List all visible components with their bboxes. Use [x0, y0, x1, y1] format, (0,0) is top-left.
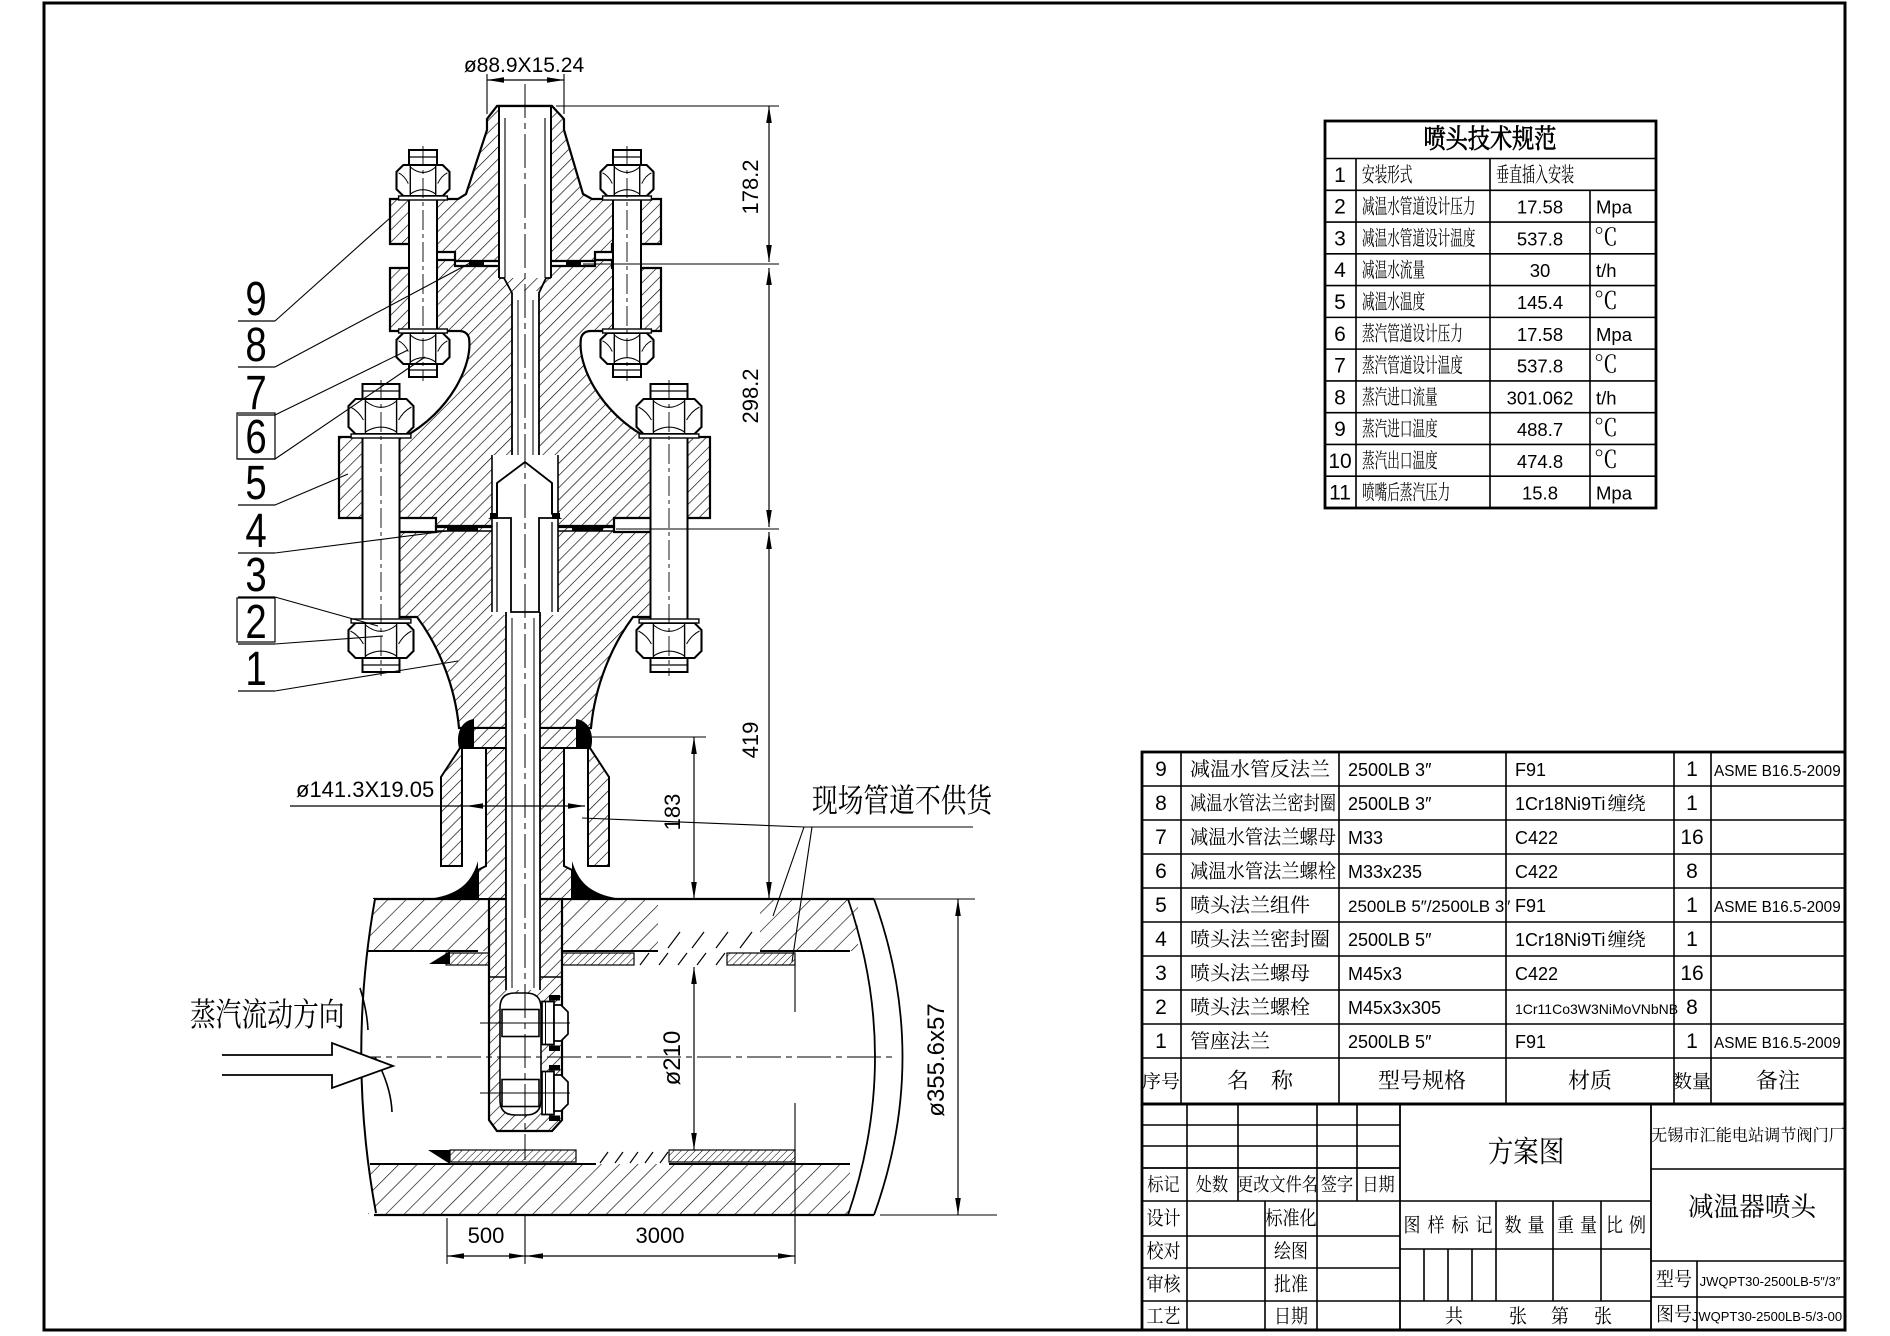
- svg-text:488.7: 488.7: [1517, 419, 1563, 440]
- svg-text:3: 3: [245, 549, 266, 602]
- svg-text:ASME B16.5-2009: ASME B16.5-2009: [1714, 763, 1841, 780]
- svg-text:M45x3: M45x3: [1348, 964, 1402, 984]
- svg-text:7: 7: [1155, 826, 1167, 849]
- svg-text:1: 1: [1155, 1030, 1167, 1053]
- svg-text:C422: C422: [1515, 964, 1558, 984]
- svg-text:2500LB 5″: 2500LB 5″: [1348, 1032, 1432, 1052]
- svg-text:17.58: 17.58: [1517, 197, 1563, 218]
- svg-text:5: 5: [245, 457, 266, 510]
- svg-text:F91: F91: [1515, 896, 1546, 916]
- svg-text:145.4: 145.4: [1517, 292, 1563, 313]
- svg-text:1: 1: [1686, 1030, 1698, 1053]
- svg-text:M33: M33: [1348, 828, 1383, 848]
- svg-text:8: 8: [1334, 386, 1346, 409]
- svg-text:ø210: ø210: [659, 1031, 686, 1086]
- svg-text:9: 9: [1155, 758, 1167, 781]
- svg-text:8: 8: [1686, 860, 1698, 883]
- svg-text:ø141.3X19.05: ø141.3X19.05: [296, 777, 434, 802]
- svg-text:JWQPT30-2500LB-5″/3″: JWQPT30-2500LB-5″/3″: [1700, 1274, 1841, 1289]
- svg-text:537.8: 537.8: [1517, 228, 1563, 249]
- svg-text:2500LB 3″: 2500LB 3″: [1348, 794, 1432, 814]
- svg-text:11: 11: [1329, 482, 1351, 505]
- svg-text:15.8: 15.8: [1522, 483, 1558, 504]
- svg-text:6: 6: [1334, 323, 1346, 346]
- svg-text:537.8: 537.8: [1517, 356, 1563, 377]
- svg-text:ø355.6x57: ø355.6x57: [923, 1003, 950, 1116]
- svg-text:Mpa: Mpa: [1596, 324, 1633, 345]
- svg-text:2500LB 3″: 2500LB 3″: [1348, 760, 1432, 780]
- svg-text:ø88.9X15.24: ø88.9X15.24: [464, 54, 585, 77]
- svg-text:2500LB 5″: 2500LB 5″: [1348, 930, 1432, 950]
- svg-text:C422: C422: [1515, 828, 1558, 848]
- svg-text:2: 2: [245, 596, 266, 649]
- svg-text:474.8: 474.8: [1517, 451, 1563, 472]
- svg-text:183: 183: [660, 794, 685, 831]
- svg-text:1: 1: [1686, 792, 1698, 815]
- svg-text:1: 1: [1686, 928, 1698, 951]
- svg-text:M33x235: M33x235: [1348, 862, 1422, 882]
- svg-text:2: 2: [1334, 196, 1346, 219]
- svg-text:17.58: 17.58: [1517, 324, 1563, 345]
- svg-text:3000: 3000: [636, 1223, 685, 1248]
- svg-text:JWQPT30-2500LB-5/3-00: JWQPT30-2500LB-5/3-00: [1692, 1309, 1842, 1324]
- svg-text:6: 6: [1155, 860, 1167, 883]
- svg-text:10: 10: [1328, 450, 1351, 473]
- svg-text:9: 9: [1334, 418, 1346, 441]
- svg-text:301.062: 301.062: [1507, 387, 1574, 408]
- svg-text:t/h: t/h: [1596, 387, 1617, 408]
- svg-text:ASME B16.5-2009: ASME B16.5-2009: [1714, 1035, 1841, 1052]
- svg-text:16: 16: [1680, 962, 1703, 985]
- svg-text:F91: F91: [1515, 1032, 1546, 1052]
- svg-text:4: 4: [1334, 259, 1346, 282]
- svg-text:500: 500: [468, 1223, 505, 1248]
- svg-text:5: 5: [1155, 894, 1167, 917]
- svg-text:1Cr18Ni9Ti: 1Cr18Ni9Ti: [1515, 794, 1605, 814]
- svg-text:7: 7: [1334, 355, 1346, 378]
- svg-text:2500LB 5″/2500LB 3″: 2500LB 5″/2500LB 3″: [1348, 897, 1510, 916]
- svg-text:Mpa: Mpa: [1596, 197, 1633, 218]
- svg-text:ASME B16.5-2009: ASME B16.5-2009: [1714, 899, 1841, 916]
- svg-text:Mpa: Mpa: [1596, 483, 1633, 504]
- svg-text:1: 1: [1686, 894, 1698, 917]
- svg-text:3: 3: [1334, 227, 1346, 250]
- svg-text:C422: C422: [1515, 862, 1558, 882]
- svg-text:178.2: 178.2: [738, 159, 763, 214]
- svg-text:298.2: 298.2: [738, 368, 763, 423]
- svg-text:8: 8: [1686, 996, 1698, 1019]
- svg-text:8: 8: [245, 319, 266, 372]
- svg-text:1Cr18Ni9Ti: 1Cr18Ni9Ti: [1515, 930, 1605, 950]
- svg-text:30: 30: [1530, 260, 1551, 281]
- svg-text:8: 8: [1155, 792, 1167, 815]
- svg-text:2: 2: [1155, 996, 1167, 1019]
- svg-text:1: 1: [1686, 758, 1698, 781]
- svg-text:M45x3x305: M45x3x305: [1348, 998, 1441, 1018]
- svg-text:3: 3: [1155, 962, 1167, 985]
- svg-text:1Cr11Co3W3NiMoVNbNB: 1Cr11Co3W3NiMoVNbNB: [1515, 1001, 1678, 1017]
- svg-text:5: 5: [1334, 291, 1346, 314]
- svg-text:1: 1: [1334, 164, 1346, 187]
- svg-text:F91: F91: [1515, 760, 1546, 780]
- svg-text:419: 419: [738, 722, 763, 759]
- svg-text:t/h: t/h: [1596, 260, 1617, 281]
- svg-text:16: 16: [1680, 826, 1703, 849]
- svg-text:4: 4: [1155, 928, 1167, 951]
- svg-text:1: 1: [245, 643, 266, 696]
